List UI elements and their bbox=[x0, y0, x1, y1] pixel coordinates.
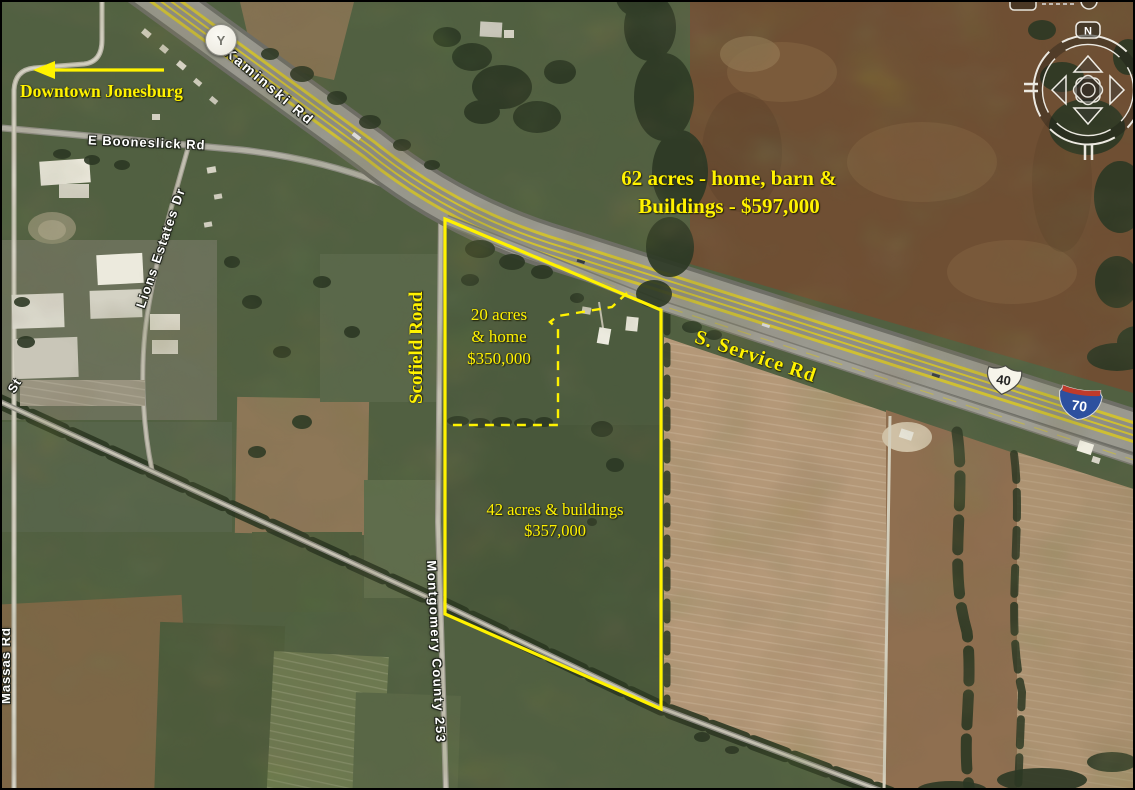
satellite-imagery: 40 70 N bbox=[2, 2, 1135, 790]
us-40-number: 40 bbox=[995, 372, 1011, 389]
terrain-texture bbox=[2, 2, 1135, 790]
i-70-number: 70 bbox=[1070, 397, 1088, 415]
north-label: N bbox=[1084, 26, 1092, 38]
route-y-marker: Y bbox=[205, 24, 237, 56]
aerial-map[interactable]: 40 70 N Kaminski Rd E Booneslick Rd Lion… bbox=[0, 0, 1135, 790]
map-control-fragment bbox=[1010, 2, 1036, 10]
route-y-label: Y bbox=[217, 33, 226, 48]
